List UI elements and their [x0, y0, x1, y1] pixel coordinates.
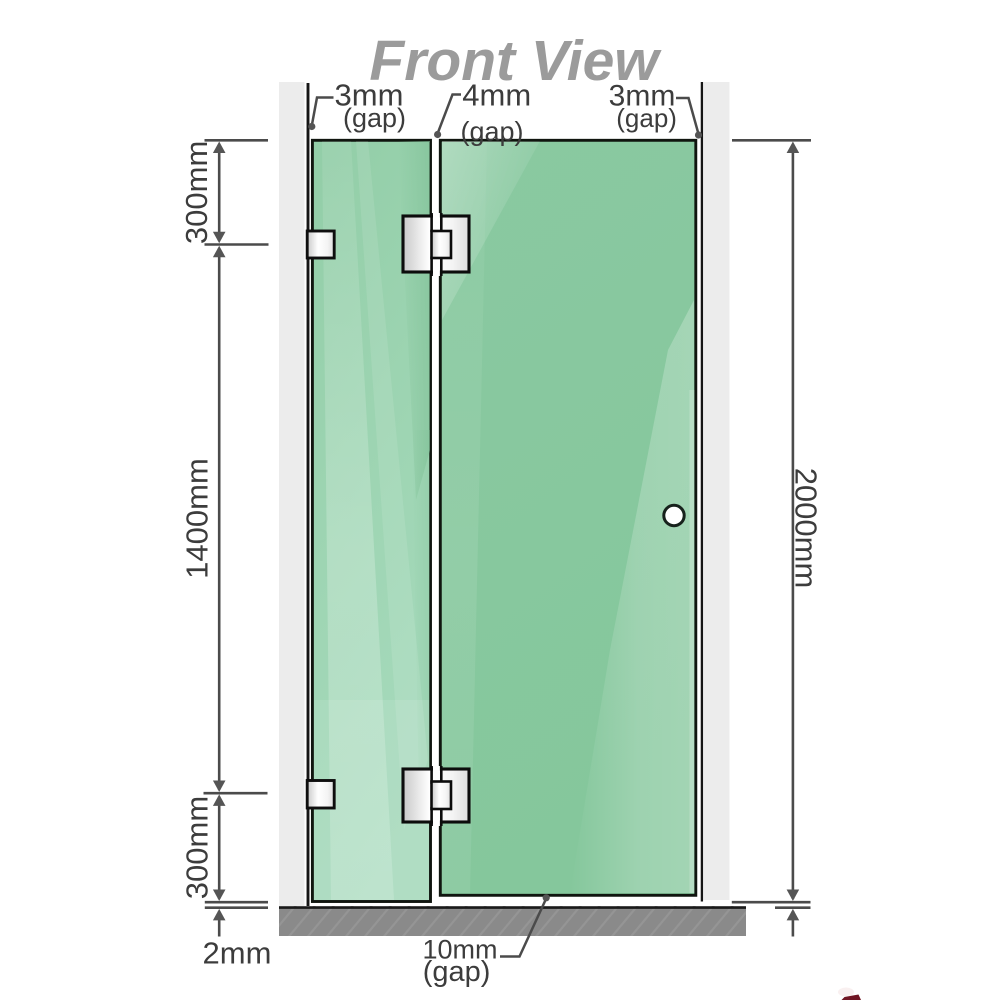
- svg-text:2000mm: 2000mm: [789, 468, 824, 589]
- svg-text:4mm: 4mm: [462, 78, 531, 113]
- svg-text:(gap): (gap): [460, 117, 523, 147]
- svg-text:(gap): (gap): [343, 103, 406, 133]
- svg-text:300mm: 300mm: [179, 141, 214, 244]
- svg-text:(gap): (gap): [616, 103, 677, 133]
- svg-text:(gap): (gap): [423, 956, 491, 988]
- svg-text:300mm: 300mm: [180, 796, 215, 899]
- svg-text:1400mm: 1400mm: [180, 458, 215, 579]
- svg-text:2mm: 2mm: [203, 936, 272, 971]
